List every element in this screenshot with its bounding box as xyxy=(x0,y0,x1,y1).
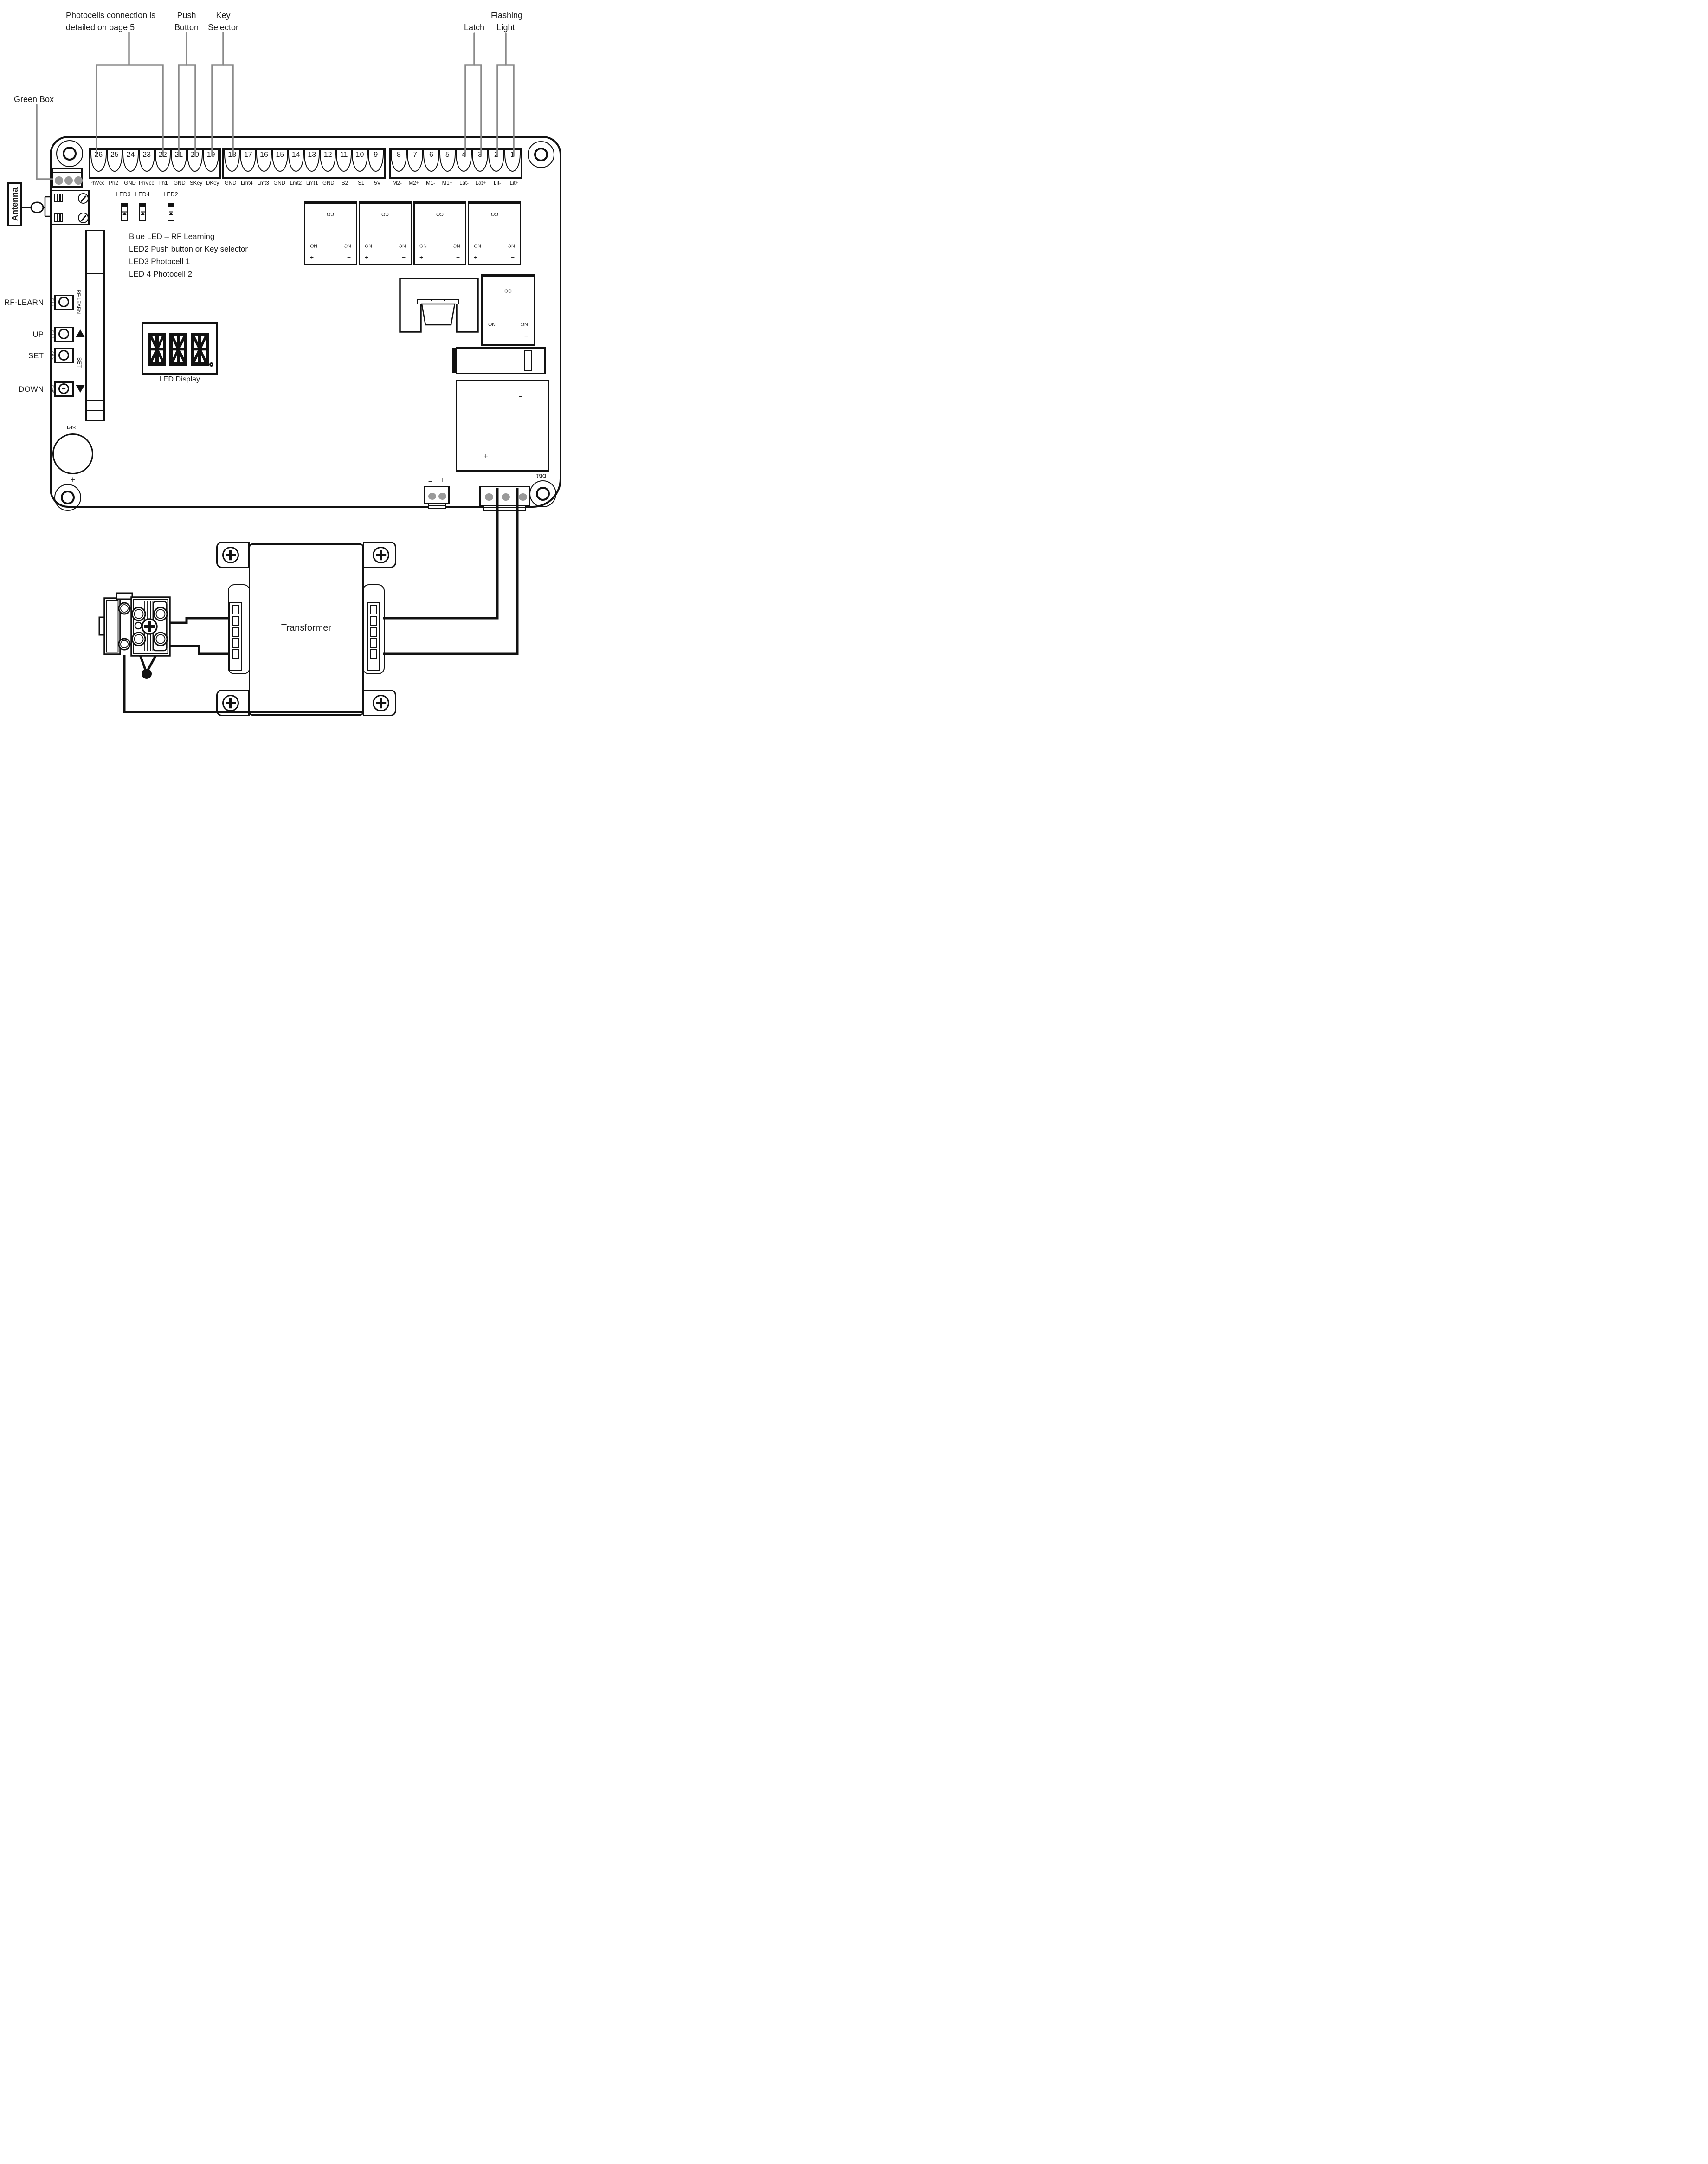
terminal-labels-1: PhVccPh2GNDPhVccPh1GNDSKeyDKey xyxy=(89,181,221,187)
terminal-label: M1- xyxy=(422,181,439,187)
pocket-row: 87654321 xyxy=(391,150,521,172)
terminal-pocket: 9 xyxy=(368,150,384,172)
relay-minus-label: − xyxy=(456,254,460,261)
terminal-label: Ph1 xyxy=(155,181,172,187)
led-display xyxy=(142,322,218,375)
led2-label: LED2 xyxy=(163,192,178,198)
led-legend: Blue LED – RF LearningLED2 Push button o… xyxy=(129,230,248,280)
terminal-number: 23 xyxy=(142,151,151,171)
antenna-label-box: Antenna xyxy=(7,182,22,226)
transformer-body: Transformer xyxy=(249,543,364,716)
terminal-pocket: 14 xyxy=(288,150,304,172)
terminal-pocket: 2 xyxy=(488,150,504,172)
sw5-ref: SW5 xyxy=(50,385,54,393)
terminal-pocket: 13 xyxy=(304,150,320,172)
terminal-label: PhVcc xyxy=(138,181,155,187)
connector-foot xyxy=(428,504,446,509)
speaker-plus-label: + xyxy=(70,476,75,484)
terminal-label: Lmt1 xyxy=(304,181,320,187)
terminal-pocket: 16 xyxy=(256,150,272,172)
battery-connector xyxy=(424,486,450,504)
terminal-number: 10 xyxy=(356,151,364,171)
relay: CO NO NC + − xyxy=(413,201,467,265)
relay-no-label: NO xyxy=(365,243,372,248)
connector-foot xyxy=(483,506,526,511)
terminal-number: 15 xyxy=(276,151,284,171)
transformer-terminals-right xyxy=(367,602,380,671)
push-button-note: PushButton xyxy=(174,9,199,33)
plug-splice-wire xyxy=(138,650,146,671)
digit-icon xyxy=(169,333,187,366)
terminal-number: 19 xyxy=(207,151,215,171)
connector-pin-icon xyxy=(55,176,63,185)
terminal-pocket: 3 xyxy=(472,150,488,172)
relay-no-label: NO xyxy=(488,322,496,327)
relay: CO NO NC + − xyxy=(468,201,521,265)
led-icon xyxy=(121,203,128,221)
set-silk-label: SET xyxy=(76,357,81,368)
connector-pin-icon xyxy=(519,493,527,501)
db1-ref: DB1 xyxy=(536,473,546,478)
antenna-label: Antenna xyxy=(11,187,19,221)
battery-minus-label: − xyxy=(428,478,432,484)
terminal-pocket: 10 xyxy=(352,150,367,172)
terminal-number: 18 xyxy=(228,151,236,171)
connector-pin-icon xyxy=(485,493,493,501)
antenna-terminal-icon xyxy=(54,194,63,202)
led4-label: LED4 xyxy=(135,192,149,198)
rf-learn-silk-label: RF-LEARN xyxy=(76,290,81,314)
relay: CO NO NC + − xyxy=(359,201,412,265)
terminal-block-2: 1817161514131211109 xyxy=(222,148,386,179)
terminal-number: 21 xyxy=(175,151,183,171)
relay-no-label: NO xyxy=(474,243,481,248)
screw-icon xyxy=(78,193,89,204)
terminal-label: Lit- xyxy=(489,181,506,187)
antenna-terminal-icon xyxy=(54,213,63,222)
connector-pin-icon xyxy=(64,176,73,185)
terminal-pocket: 25 xyxy=(107,150,123,172)
connector-pin-icon xyxy=(502,493,510,501)
led-legend-line: LED2 Push button or Key selector xyxy=(129,243,248,255)
rf-learn-button: + xyxy=(54,295,74,310)
terminal-number: 6 xyxy=(429,151,433,171)
transformer-terminals-left xyxy=(229,602,242,671)
terminal-block-3: 87654321 xyxy=(389,148,522,179)
set-button: + xyxy=(54,348,74,363)
relay-plus-label: + xyxy=(365,254,368,261)
terminal-pocket: 12 xyxy=(320,150,335,172)
terminal-pocket: 4 xyxy=(456,150,472,172)
terminal-labels-2: GNDLmt4Lmt3GNDLmt2Lmt1GNDS2S15V xyxy=(222,181,386,187)
led-legend-line: Blue LED – RF Learning xyxy=(129,230,248,243)
terminal-number: 8 xyxy=(397,151,401,171)
relay-co-label: CO xyxy=(381,212,389,217)
terminal-pocket: 21 xyxy=(171,150,187,172)
terminal-label: SKey xyxy=(188,181,205,187)
terminal-number: 2 xyxy=(494,151,498,171)
led-legend-line: LED3 Photocell 1 xyxy=(129,255,248,268)
terminal-pocket: 17 xyxy=(240,150,256,172)
photocells-note-line1: Photocells connection is xyxy=(66,9,155,21)
relay-co-label: CO xyxy=(436,212,444,217)
speaker-icon xyxy=(52,433,93,474)
green-box-note: Green Box xyxy=(14,93,54,105)
terminal-label: Lat- xyxy=(456,181,472,187)
button-cap-icon: + xyxy=(58,329,69,339)
screw-icon xyxy=(373,547,389,563)
power-plug xyxy=(99,593,170,656)
terminal-pocket: 26 xyxy=(90,150,107,172)
terminal-label: S1 xyxy=(353,181,369,187)
terminal-pocket: 1 xyxy=(504,150,521,172)
led-icon xyxy=(139,203,146,221)
screw-icon xyxy=(222,547,239,563)
relay-plus-label: + xyxy=(488,333,492,340)
led3-label: LED3 xyxy=(116,192,130,198)
terminal-pocket: 5 xyxy=(439,150,456,172)
sw4-ref: SW4 xyxy=(50,351,54,360)
plug-to-transformer-upper xyxy=(170,618,230,623)
capacitor-band-icon xyxy=(524,350,532,371)
terminal-pocket: 22 xyxy=(155,150,171,172)
terminal-label: GND xyxy=(271,181,288,187)
capacitor-component xyxy=(456,347,546,374)
terminal-pocket: 11 xyxy=(336,150,352,172)
terminal-number: 12 xyxy=(324,151,332,171)
connector-pin-icon xyxy=(74,176,83,185)
terminal-number: 24 xyxy=(127,151,135,171)
mounting-hole-icon xyxy=(534,148,548,161)
terminal-number: 11 xyxy=(340,151,348,171)
mounting-hole-icon xyxy=(61,491,75,504)
terminal-label: PhVcc xyxy=(89,181,105,187)
terminal-pocket: 19 xyxy=(203,150,219,172)
sw1-ref: SW1 xyxy=(50,298,54,306)
terminal-number: 5 xyxy=(445,151,450,171)
down-label: DOWN xyxy=(19,385,44,394)
capacitor-band-bar xyxy=(452,348,456,373)
terminal-number: 7 xyxy=(413,151,417,171)
rf-module xyxy=(85,230,105,421)
terminal-label: GND xyxy=(171,181,188,187)
relay: CO NO NC + − xyxy=(304,201,357,265)
green-box-connector xyxy=(52,168,83,188)
rf-learn-label: RF-LEARN xyxy=(4,298,44,307)
terminal-block-1: 2625242322212019 xyxy=(89,148,221,179)
antenna-ref-label: 11 xyxy=(35,205,40,210)
relay-plus-label: + xyxy=(310,254,314,261)
terminal-number: 20 xyxy=(191,151,199,171)
relay-co-label: CO xyxy=(491,212,498,217)
terminal-number: 9 xyxy=(374,151,378,171)
terminal-label: Lmt2 xyxy=(288,181,304,187)
relay-nc-label: NC xyxy=(508,243,515,248)
relay-plus-label: + xyxy=(474,254,477,261)
relay-nc-label: NC xyxy=(453,243,460,248)
transformer-to-board-lower xyxy=(383,488,517,654)
key-selector-note: KeySelector xyxy=(208,9,238,33)
led-icon xyxy=(168,203,174,221)
terminal-label: 5V xyxy=(369,181,386,187)
down-triangle-icon xyxy=(76,385,85,393)
button-cap-icon: + xyxy=(58,383,69,394)
relay-co-label: CO xyxy=(504,288,512,293)
terminal-label: S2 xyxy=(336,181,353,187)
wiring-diagram: Photocells connection is detailed on pag… xyxy=(0,0,569,721)
terminal-label: M2+ xyxy=(406,181,422,187)
terminal-label: Lit+ xyxy=(506,181,522,187)
flashing-note: Flashing xyxy=(491,9,522,21)
screw-icon xyxy=(78,213,89,223)
photocells-note-line2: detailed on page 5 xyxy=(66,21,155,33)
terminal-labels-3: M2-M2+M1-M1+Lat-Lat+Lit-Lit+ xyxy=(389,181,522,187)
terminal-label: M1+ xyxy=(439,181,456,187)
terminal-pocket: 23 xyxy=(139,150,155,172)
transformer-label: Transformer xyxy=(281,623,331,633)
pocket-row: 1817161514131211109 xyxy=(224,150,384,172)
plug-to-transformer-lower xyxy=(170,646,230,654)
latch-note: Latch xyxy=(464,21,484,33)
relay-co-label: CO xyxy=(327,212,335,217)
led-legend-line: LED 4 Photocell 2 xyxy=(129,268,248,280)
digit-icon xyxy=(191,333,209,366)
relay-nc-label: NC xyxy=(344,243,351,248)
terminal-number: 17 xyxy=(244,151,252,171)
terminal-pocket: 20 xyxy=(187,150,203,172)
sw3-ref: SW3 xyxy=(50,330,54,338)
terminal-label: Ph2 xyxy=(105,181,122,187)
terminal-number: 3 xyxy=(478,151,482,171)
terminal-label: Lmt4 xyxy=(238,181,255,187)
up-button: + xyxy=(54,327,74,342)
terminal-label: GND xyxy=(122,181,138,187)
screw-icon xyxy=(142,619,157,634)
mounting-hole-icon xyxy=(63,147,77,161)
wire-splice-dot xyxy=(142,669,152,679)
relay-row: CO NO NC + − CO NO NC + − CO NO NC + − xyxy=(304,201,521,265)
light-note: Light xyxy=(496,21,515,33)
decimal-point-icon xyxy=(209,362,213,367)
terminal-number: 16 xyxy=(260,151,268,171)
db1-minus-label: − xyxy=(518,394,522,401)
screw-icon xyxy=(373,695,389,711)
relay-minus-label: − xyxy=(347,254,351,261)
pocket-row: 2625242322212019 xyxy=(90,150,219,172)
relay-nc-label: NC xyxy=(521,322,528,327)
terminal-label: GND xyxy=(320,181,336,187)
terminal-number: 25 xyxy=(110,151,119,171)
button-cap-icon: + xyxy=(58,297,69,307)
terminal-number: 13 xyxy=(308,151,316,171)
display-digits xyxy=(148,333,209,366)
connector-pin-icon xyxy=(438,493,446,500)
terminal-pocket: 15 xyxy=(272,150,288,172)
terminal-number: 26 xyxy=(94,151,103,171)
relay: CO NO NC + − xyxy=(481,274,535,346)
relay-no-label: NO xyxy=(419,243,427,248)
mounting-hole-icon xyxy=(536,487,550,501)
antenna-terminal-block xyxy=(51,190,90,225)
set-label: SET xyxy=(28,351,44,361)
terminal-number: 14 xyxy=(292,151,300,171)
terminal-label: GND xyxy=(222,181,238,187)
up-triangle-icon xyxy=(76,329,85,337)
terminal-pocket: 24 xyxy=(122,150,139,172)
ac-input-connector xyxy=(479,486,530,506)
relay-no-label: NO xyxy=(310,243,317,248)
terminal-pocket: 6 xyxy=(423,150,439,172)
terminal-pocket: 8 xyxy=(391,150,407,172)
terminal-label: Lat+ xyxy=(472,181,489,187)
relay-nc-label: NC xyxy=(399,243,406,248)
terminal-pocket: 18 xyxy=(224,150,240,172)
db1-component: − + xyxy=(456,380,549,472)
terminal-label: M2- xyxy=(389,181,406,187)
battery-plus-label: + xyxy=(441,477,445,484)
terminal-number: 1 xyxy=(510,151,515,171)
digit-icon xyxy=(148,333,166,366)
plug-splice-wire xyxy=(148,649,159,671)
button-cap-icon: + xyxy=(58,350,69,361)
up-label: UP xyxy=(32,330,44,339)
terminal-pocket: 7 xyxy=(407,150,423,172)
terminal-number: 4 xyxy=(462,151,466,171)
relay-plus-label: + xyxy=(419,254,423,261)
speaker-ref: SP1 xyxy=(66,425,76,430)
led-display-label: LED Display xyxy=(159,376,200,383)
connector-pin-icon xyxy=(428,493,436,500)
down-button: + xyxy=(54,381,74,397)
relay-minus-label: − xyxy=(401,254,405,261)
screw-icon xyxy=(222,695,239,711)
terminal-number: 22 xyxy=(159,151,167,171)
photocells-note: Photocells connection is detailed on pag… xyxy=(66,9,155,33)
terminal-label: DKey xyxy=(204,181,221,187)
db1-plus-label: + xyxy=(483,453,488,460)
relay-minus-label: − xyxy=(511,254,515,261)
relay-minus-label: − xyxy=(524,333,528,340)
terminal-label: Lmt3 xyxy=(255,181,271,187)
